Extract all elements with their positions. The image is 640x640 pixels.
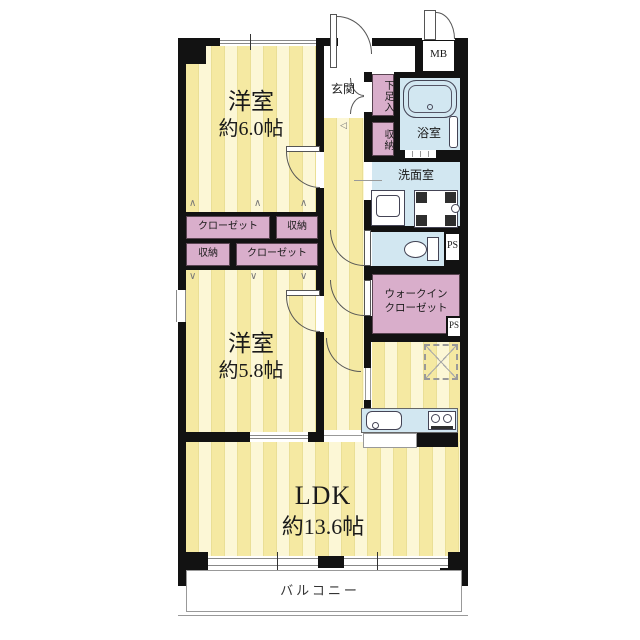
front-door-arc bbox=[337, 16, 372, 54]
toilet-bowl-icon bbox=[404, 241, 427, 258]
wall bbox=[364, 266, 468, 274]
folding-door-line bbox=[412, 151, 413, 157]
meter-box-label: MB bbox=[422, 48, 455, 62]
folding-door-line bbox=[420, 151, 421, 157]
storage-upper-label: 収納 bbox=[276, 221, 318, 234]
vanity-pad-icon bbox=[416, 192, 427, 203]
vanity-faucet-icon bbox=[451, 204, 460, 213]
sliding-partition bbox=[250, 433, 308, 441]
hallway-floor bbox=[324, 118, 364, 432]
wall-pillar bbox=[178, 38, 206, 64]
balcony-outer-line bbox=[178, 615, 468, 616]
entrance-storage-label: 収納 bbox=[373, 125, 393, 155]
window bbox=[220, 38, 316, 46]
toilet-door-leaf bbox=[364, 230, 371, 266]
wall bbox=[415, 38, 422, 72]
window bbox=[176, 290, 186, 322]
closet-upper-label: クローゼット bbox=[186, 221, 270, 234]
window-center-mark bbox=[377, 552, 378, 572]
room-name: 洋室 bbox=[186, 330, 316, 359]
wall bbox=[460, 38, 468, 568]
fold-mark: ∧ bbox=[189, 199, 196, 209]
wall bbox=[316, 332, 324, 442]
wall bbox=[316, 46, 324, 152]
fold-mark: ∨ bbox=[300, 272, 307, 282]
bathtub bbox=[403, 80, 457, 118]
folding-door-line bbox=[428, 151, 429, 157]
kitchen-counter-wall bbox=[417, 433, 458, 447]
vanity-pad-icon bbox=[445, 192, 456, 203]
walk-in-closet-label: ウォークイン クローゼット bbox=[372, 288, 460, 316]
shoe-cupboard-label: 下足入 bbox=[373, 77, 393, 115]
front-door-leaf bbox=[330, 14, 337, 68]
walk-in-closet-line2: クローゼット bbox=[372, 302, 460, 316]
room-size: 約6.0帖 bbox=[186, 117, 316, 142]
washroom-label: 洗面室 bbox=[372, 168, 460, 183]
wall bbox=[364, 342, 371, 368]
window bbox=[344, 556, 448, 568]
ldk-label: LDK 約13.6帖 bbox=[186, 480, 460, 540]
washing-machine-drum-icon bbox=[376, 195, 400, 217]
floor-plan: ∧ ∧ ∧ ∨ ∨ ∨ ◁ 洋室 約6.0帖 洋室 約5.8帖 LDK 約13.… bbox=[0, 0, 640, 640]
room-size: 約5.8帖 bbox=[186, 359, 316, 384]
pocket-door-line bbox=[370, 368, 371, 400]
closet-lower-label: クローゼット bbox=[236, 248, 318, 261]
window-center-mark bbox=[277, 552, 278, 572]
wall bbox=[364, 112, 372, 162]
wall bbox=[308, 432, 324, 442]
pocket-door-line bbox=[365, 368, 366, 400]
pipe-space-upper-label: PS bbox=[444, 240, 461, 253]
room-name: 洋室 bbox=[186, 88, 316, 117]
kitchen-sink-icon bbox=[366, 411, 402, 430]
entrance-label: 玄関 bbox=[322, 82, 364, 97]
refrigerator-space bbox=[424, 344, 458, 380]
vanity-pad-icon bbox=[445, 215, 456, 226]
wall bbox=[178, 432, 250, 442]
wall bbox=[436, 150, 462, 158]
pipe-space-lower-label: PS bbox=[446, 320, 462, 331]
bathtub-drain-icon bbox=[427, 104, 433, 110]
walk-in-closet-door-leaf bbox=[364, 280, 371, 316]
bedroom1-label: 洋室 約6.0帖 bbox=[186, 88, 316, 142]
shoe-cupboard-door-arc bbox=[350, 96, 364, 114]
toilet-tank-icon bbox=[427, 237, 439, 261]
bathroom-label: 浴室 bbox=[400, 126, 458, 141]
threshold-line bbox=[324, 435, 362, 436]
stove-grill-icon bbox=[431, 426, 453, 429]
vanity-pad-icon bbox=[416, 215, 427, 226]
balcony-label: バルコニー bbox=[220, 583, 420, 599]
meter-box-door-leaf bbox=[424, 10, 436, 40]
window-center-mark bbox=[250, 34, 251, 50]
fold-mark: ∨ bbox=[189, 272, 196, 282]
bedroom2-label: 洋室 約5.8帖 bbox=[186, 330, 316, 384]
walk-in-closet-line1: ウォークイン bbox=[372, 288, 460, 302]
entry-step-mark: ◁ bbox=[340, 121, 347, 130]
fold-mark: ∧ bbox=[254, 199, 261, 209]
hallway-ldk-opening bbox=[324, 430, 362, 442]
meter-box-door-arc bbox=[436, 12, 455, 39]
storage-lower-label: 収納 bbox=[186, 248, 230, 261]
room-size: 約13.6帖 bbox=[186, 513, 460, 541]
wall bbox=[455, 38, 468, 72]
room-name: LDK bbox=[186, 480, 460, 513]
kitchen-faucet-icon bbox=[372, 422, 379, 429]
counter-cabinet bbox=[363, 433, 417, 448]
wall bbox=[364, 72, 372, 82]
window bbox=[208, 556, 318, 568]
wall bbox=[318, 556, 344, 568]
stove-burner-icon bbox=[443, 414, 452, 423]
fold-mark: ∧ bbox=[300, 199, 307, 209]
fold-mark: ∨ bbox=[250, 272, 257, 282]
wall bbox=[372, 38, 420, 46]
stove-burner-icon bbox=[431, 414, 440, 423]
